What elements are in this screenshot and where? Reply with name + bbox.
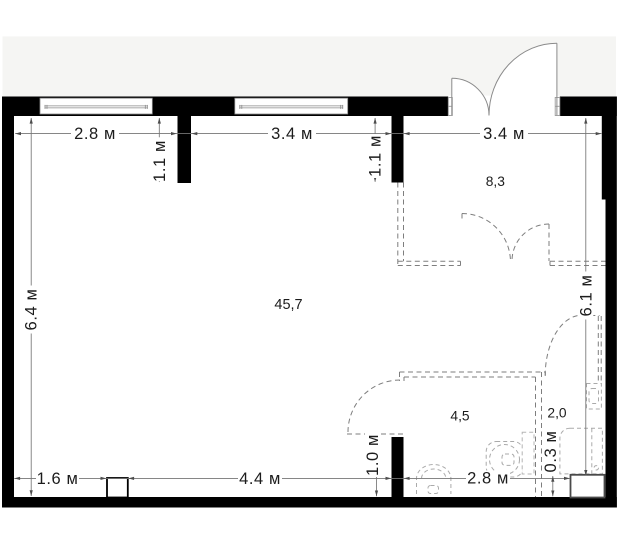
svg-text:6.1 м: 6.1 м — [577, 275, 595, 317]
svg-text:2,0: 2,0 — [547, 406, 567, 421]
svg-text:8,3: 8,3 — [486, 174, 506, 189]
svg-text:4.4 м: 4.4 м — [239, 470, 281, 488]
svg-text:0.3 м: 0.3 м — [542, 431, 560, 473]
svg-text:1.6 м: 1.6 м — [37, 470, 79, 488]
svg-text:6.4 м: 6.4 м — [23, 289, 41, 331]
svg-text:4,5: 4,5 — [450, 408, 470, 423]
svg-text:1.0 м: 1.0 м — [364, 434, 382, 476]
svg-text:3.4 м: 3.4 м — [483, 125, 525, 143]
svg-text:45,7: 45,7 — [274, 297, 302, 313]
svg-text:2.8 м: 2.8 м — [74, 125, 116, 143]
svg-text:1.1 м: 1.1 м — [151, 140, 169, 182]
svg-text:1.1 м: 1.1 м — [367, 135, 385, 177]
svg-text:3.4 м: 3.4 м — [271, 125, 313, 143]
svg-text:2.8 м: 2.8 м — [467, 470, 509, 488]
